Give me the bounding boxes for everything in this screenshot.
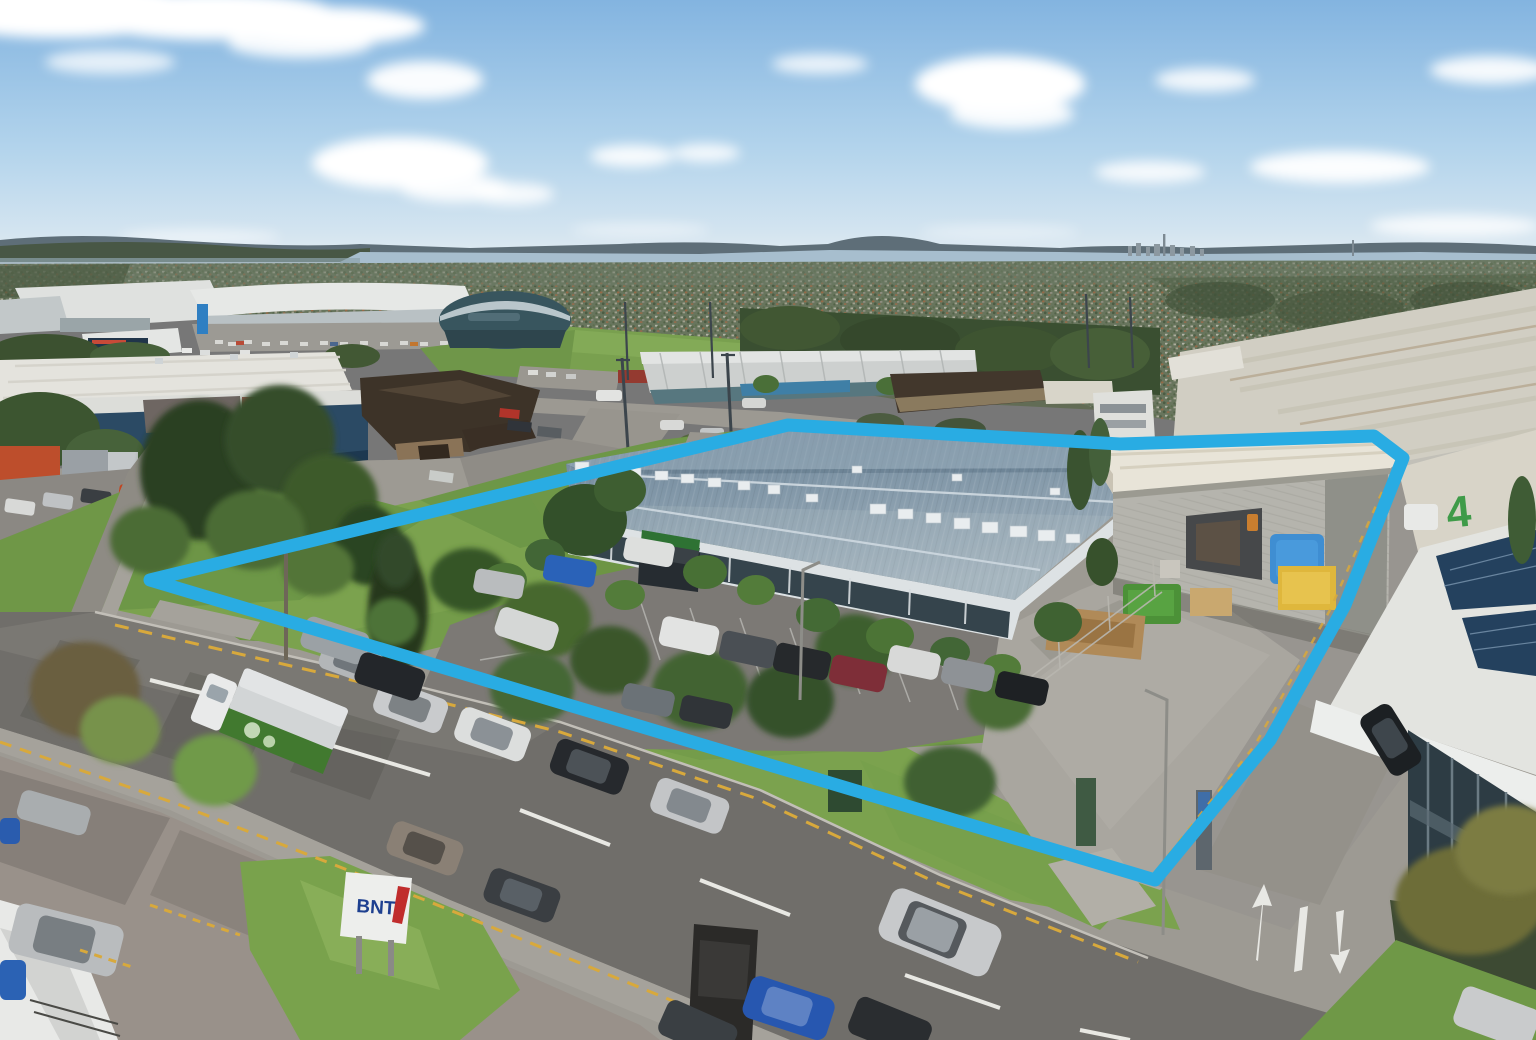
svg-text:BNT: BNT [356,896,397,920]
